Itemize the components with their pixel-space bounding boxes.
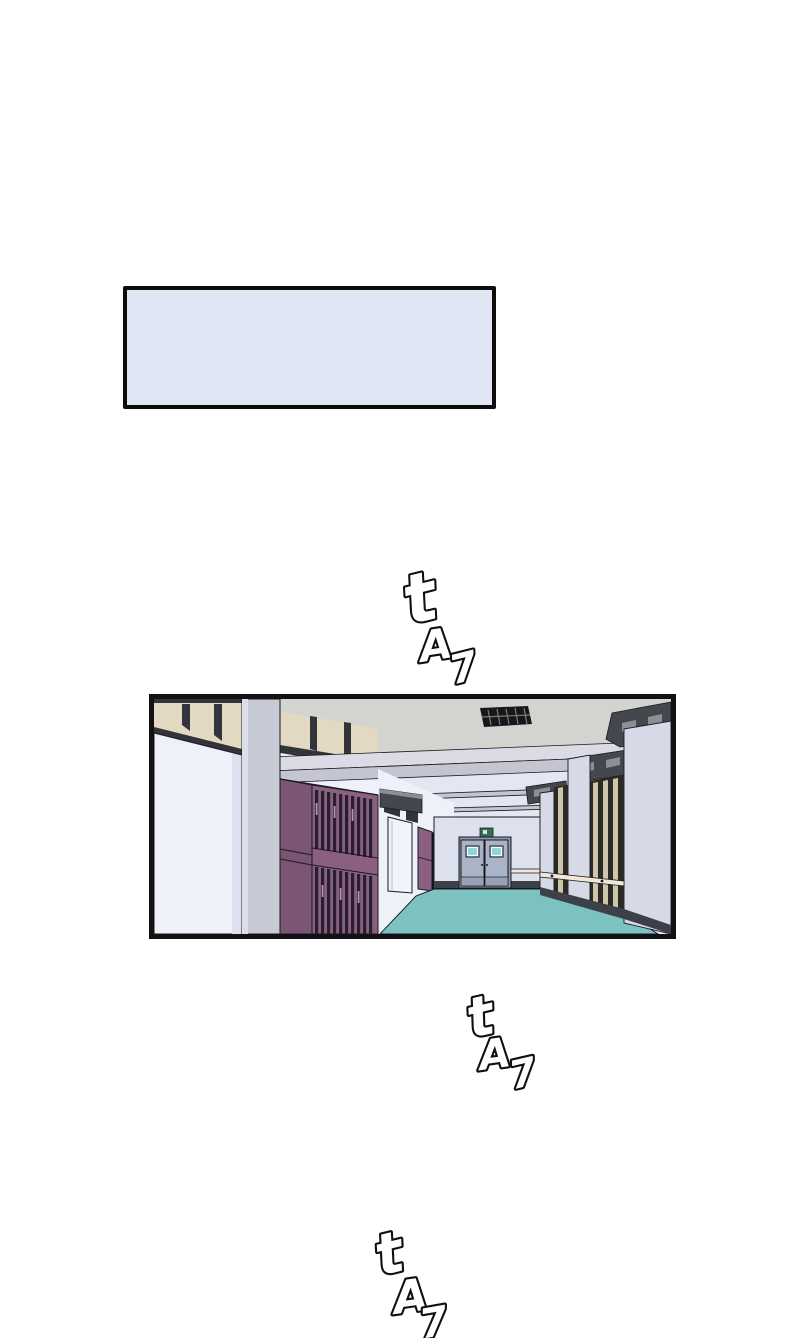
caption-box: [123, 286, 496, 409]
end-wall: [434, 817, 540, 888]
hallway-scene: [154, 699, 671, 934]
sfx-tap-2-art: t A 7: [450, 978, 554, 1090]
support-pillar: [242, 699, 280, 934]
sfx-tap-3-art: t A 7: [350, 1206, 458, 1338]
double-doors: [459, 837, 511, 888]
end-wall-handrail: [511, 869, 540, 873]
sfx-tap-1-art: t A 7: [390, 552, 490, 686]
right-front-pillar: [624, 721, 671, 934]
sfx-letter: 7: [505, 1049, 541, 1099]
comic-panel: [149, 694, 676, 939]
sfx-tap-1: t A 7: [390, 552, 490, 686]
ceiling-vent-grille: [480, 706, 532, 727]
sfx-tap-3: t A 7: [350, 1206, 458, 1338]
locker-bank: [280, 779, 378, 934]
sfx-letter: 7: [416, 1296, 453, 1338]
comic-page: { "page": { "background": "#ffffff" }, "…: [0, 0, 800, 1280]
sfx-tap-2: t A 7: [450, 978, 554, 1090]
left-wall: [154, 699, 242, 934]
sfx-letter: 7: [445, 643, 483, 694]
